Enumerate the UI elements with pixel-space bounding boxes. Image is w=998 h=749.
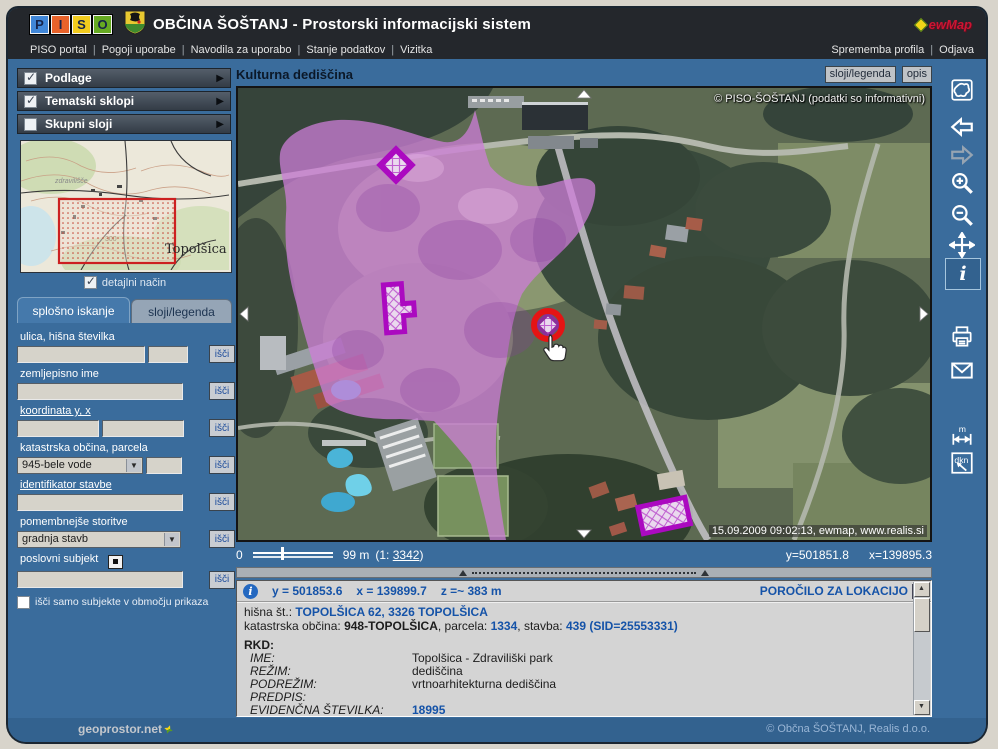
piso-logo-letter: S (72, 15, 91, 34)
menu-bar: PISO portal Pogoji uporabe Navodila za u… (8, 41, 986, 59)
scale-ratio-link[interactable]: 3342 (393, 548, 420, 562)
services-label: pomembnejše storitve (20, 516, 235, 528)
tab-sloji-legenda[interactable]: sloji/legenda (131, 299, 232, 323)
scale-bar-row: 0 99 m (1: 3342) y=501851.8 x=139895.3 (236, 547, 932, 563)
street-input[interactable] (17, 346, 145, 363)
map-title: Kulturna dediščina (236, 67, 353, 82)
zoom-out-tool[interactable] (945, 200, 979, 230)
scroll-down-button[interactable] (914, 700, 930, 715)
building-id-search-button[interactable]: išči (209, 493, 235, 511)
business-info-icon[interactable] (108, 555, 123, 569)
geoname-search-button[interactable]: išči (209, 382, 235, 400)
house-number-link[interactable]: TOPOLŠICA 62, 3326 TOPOLŠICA (295, 605, 488, 619)
coordinate-label[interactable]: koordinata y, x (20, 405, 235, 417)
info-coord-x: x = 139899.7 (356, 584, 426, 598)
zoom-in-tool[interactable] (945, 168, 979, 198)
detail-mode-checkbox[interactable] (84, 276, 97, 289)
house-number-input[interactable] (148, 346, 188, 363)
overview-place-label: Topolšica (165, 242, 227, 257)
geoprostor-logo[interactable]: geoprostor.net (78, 722, 173, 736)
scale-zero: 0 (236, 548, 243, 562)
piso-logo-letter: O (93, 15, 112, 34)
skupni-checkbox[interactable] (24, 118, 37, 131)
location-info-panel: i y = 501853.6 x = 139899.7 z =~ 383 m P… (236, 580, 932, 717)
cadastre-search-button[interactable]: išči (209, 456, 235, 474)
piso-logo-letter: P (30, 15, 49, 34)
menu-links-right: Sprememba profila Odjava (831, 44, 974, 56)
menu-item-stanje[interactable]: Stanje podatkov (306, 44, 400, 56)
svg-text:m: m (959, 424, 966, 434)
services-search-button[interactable]: išči (209, 530, 235, 548)
menu-item-pogoji[interactable]: Pogoji uporabe (102, 44, 191, 56)
menu-item-sprememba-profila[interactable]: Sprememba profila (831, 44, 939, 56)
footer-copyright: © Občna ŠOŠTANJ, Realis d.o.o. (766, 723, 930, 735)
geoprostor-star-icon (163, 723, 175, 735)
footer: geoprostor.net © Občna ŠOŠTANJ, Realis d… (8, 718, 986, 742)
accordion-skupni-sloji[interactable]: Skupni sloji (17, 114, 231, 134)
info-header: i y = 501853.6 x = 139899.7 z =~ 383 m P… (237, 581, 931, 602)
scale-slider[interactable] (253, 552, 333, 554)
scroll-up-button[interactable] (914, 582, 930, 597)
scale-slider-handle[interactable] (281, 547, 284, 560)
info-coord-z: z =~ 383 m (441, 584, 502, 598)
overview-spa-label: zdravilišče (54, 178, 88, 185)
ewmap-logo: ewMap (916, 17, 972, 32)
street-label: ulica, hišna številka (20, 331, 235, 343)
street-search-button[interactable]: išči (209, 345, 235, 363)
location-report-link[interactable]: POROČILO ZA LOKACIJO (760, 584, 925, 599)
piso-logo-letter: I (51, 15, 70, 34)
menu-links: PISO portal Pogoji uporabe Navodila za u… (30, 44, 432, 56)
coord-x: x=139895.3 (869, 548, 932, 562)
coord-y: y=501851.8 (786, 548, 849, 562)
cadastre-select[interactable]: 945-bele vode (17, 457, 143, 474)
scroll-thumb[interactable] (914, 598, 930, 632)
app-window: PISO OBČINA ŠOŠTANJ - Prostorski informa… (8, 8, 986, 742)
selected-heritage-marker[interactable] (534, 311, 562, 339)
description-button[interactable]: opis (902, 66, 932, 83)
panel-resize-handle[interactable] (459, 569, 709, 576)
map-viewport[interactable]: © PISO-ŠOŠTANJ (podatki so informativni)… (236, 86, 932, 542)
rkd-row: IME:Topolšica - Zdraviliški park (244, 652, 909, 665)
accordion-podlage[interactable]: Podlage (17, 68, 231, 88)
info-scrollbar[interactable] (913, 582, 930, 715)
business-search-button[interactable]: išči (209, 571, 235, 589)
menu-item-piso-portal[interactable]: PISO portal (30, 44, 102, 56)
cadastre-line: katastrska občina: 948-TOPOLŠICA, parcel… (244, 619, 909, 633)
podlage-checkbox[interactable] (24, 72, 37, 85)
overview-map[interactable]: zdravilišče 300 Topolšica (20, 140, 232, 273)
menu-item-navodila[interactable]: Navodila za uporabo (191, 44, 307, 56)
map-toolbar: i (938, 60, 986, 700)
tematski-checkbox[interactable] (24, 95, 37, 108)
evidence-number-link[interactable]: 18995 (412, 703, 445, 717)
coordinate-y-input[interactable] (17, 420, 99, 437)
cadastre-label: katastrska občina, parcela (20, 442, 235, 454)
building-id-input[interactable] (17, 494, 183, 511)
parcel-input[interactable] (146, 457, 182, 474)
area-filter-checkbox[interactable] (17, 596, 30, 609)
geoname-label: zemljepisno ime (20, 368, 235, 380)
building-id-label[interactable]: identifikator stavbe (20, 479, 235, 491)
rkd-row: REŽIM:dediščina (244, 665, 909, 678)
map-timestamp: 15.09.2009 09:02:13, ewmap, www.realis.s… (709, 525, 927, 537)
info-coord-y: y = 501853.6 (272, 584, 342, 598)
coordinate-search-button[interactable]: išči (209, 419, 235, 437)
page: PISO OBČINA ŠOŠTANJ - Prostorski informa… (0, 0, 998, 749)
municipality-crest-icon (124, 10, 146, 40)
map-title-bar: Kulturna dediščina sloji/legenda opis (236, 63, 932, 85)
tab-splosno-iskanje[interactable]: splošno iskanje (17, 297, 130, 323)
area-filter-row: išči samo subjekte v območju prikaza (17, 596, 235, 609)
menu-item-odjava[interactable]: Odjava (939, 44, 974, 56)
scale-ratio: (1: 3342) (375, 548, 423, 562)
menu-item-vizitka[interactable]: Vizitka (400, 44, 432, 56)
layers-legend-button[interactable]: sloji/legenda (825, 66, 896, 83)
detail-mode-row: detajlni način (20, 276, 230, 289)
header: PISO OBČINA ŠOŠTANJ - Prostorski informa… (8, 8, 986, 41)
rkd-row: PODREŽIM:vrtnoarhitekturna dediščina (244, 678, 909, 691)
print-tool[interactable] (945, 322, 979, 352)
business-label: poslovni subjekt (20, 553, 235, 569)
map-watermark: © PISO-ŠOŠTANJ (podatki so informativni) (714, 93, 925, 105)
overview-extent-rect[interactable] (59, 199, 175, 263)
rkd-heading: RKD: (244, 638, 909, 652)
piso-logo: PISO (30, 15, 114, 34)
building-link[interactable]: 439 (SID=25553331) (566, 619, 678, 633)
back-tool[interactable] (945, 112, 979, 142)
services-select[interactable]: gradnja stavb (17, 531, 181, 548)
geoname-input[interactable] (17, 383, 183, 400)
pan-tool[interactable] (945, 230, 979, 260)
info-icon: i (243, 584, 258, 599)
panel-divider (236, 567, 932, 578)
identify-tool[interactable]: i (945, 258, 981, 290)
mail-tool[interactable] (945, 355, 979, 385)
info-content: hišna št.: TOPOLŠICA 62, 3326 TOPOLŠICA … (237, 602, 931, 717)
ewmap-diamond-icon (914, 17, 928, 31)
accordion-tematski-sklopi[interactable]: Tematski sklopi (17, 91, 231, 111)
rkd-row: EVIDENČNA ŠTEVILKA:18995 (244, 704, 909, 717)
measure-tool[interactable]: m (945, 420, 979, 450)
mouse-coordinates: y=501851.8 x=139895.3 (786, 548, 932, 562)
coordinate-x-input[interactable] (102, 420, 184, 437)
business-input[interactable] (17, 571, 183, 588)
full-extent-tool[interactable] (945, 75, 979, 105)
dkn-tool[interactable]: dkn (945, 448, 979, 478)
house-number-line: hišna št.: TOPOLŠICA 62, 3326 TOPOLŠICA (244, 605, 909, 619)
forward-tool[interactable] (945, 140, 979, 170)
parcel-link[interactable]: 1334 (491, 619, 518, 633)
scale-distance: 99 m (343, 548, 370, 562)
search-panel: ulica, hišna številka išči zemljepisno i… (17, 326, 235, 609)
app-title: OBČINA ŠOŠTANJ - Prostorski informacijsk… (153, 16, 531, 33)
